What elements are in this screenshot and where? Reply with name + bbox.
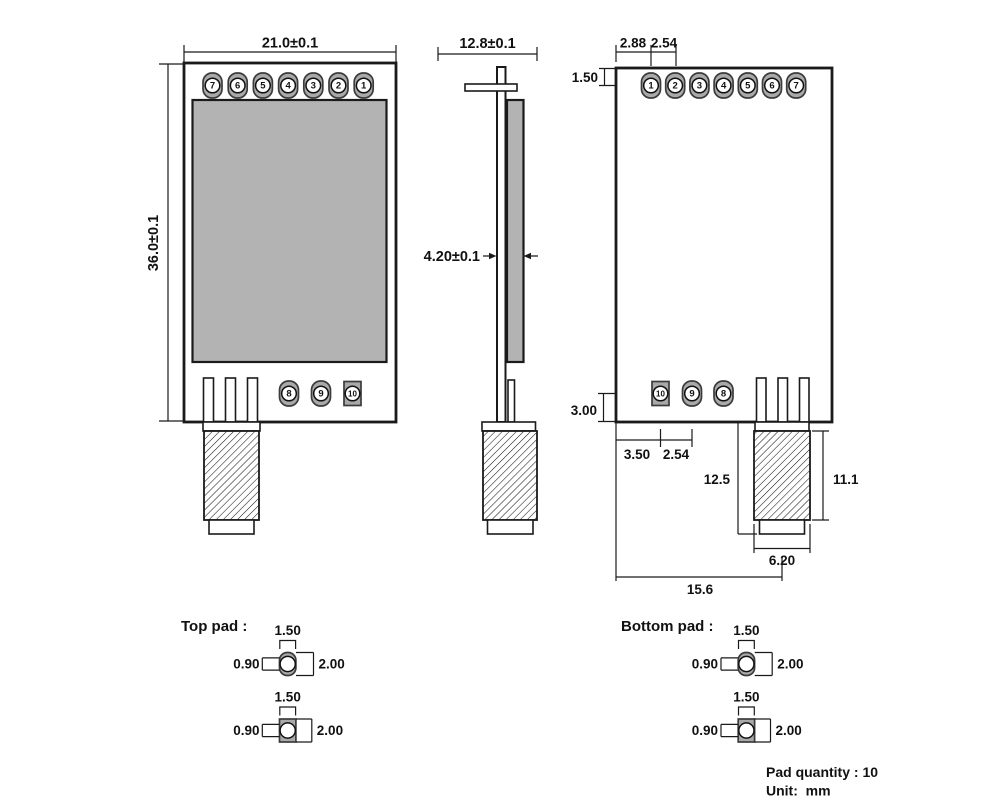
- front-antenna-tip: [209, 520, 254, 534]
- bottom-pad-stadium-height-lines: [755, 653, 773, 676]
- front-view: 21.0±0.1 36.0±0.1 7 6 5 4 3 2 1 8 9 10: [146, 36, 396, 535]
- front-pin-8: 8: [280, 381, 299, 406]
- front-antenna-connector: [203, 422, 260, 534]
- back-antenna-length-dimension: 12.5: [704, 423, 757, 535]
- front-pin-4-num: 4: [285, 81, 291, 92]
- back-pin-row-offset-lines: [599, 69, 615, 86]
- drawing-notes: Pad quantity : 10 Unit: mm: [766, 764, 878, 799]
- front-pin-6-num: 6: [235, 81, 240, 92]
- side-view: 12.8±0.1 4.20±0.1: [424, 36, 538, 534]
- back-bottom-pad-offset-lines: [598, 394, 615, 422]
- back-pin-1: 1: [642, 73, 661, 98]
- back-pin-2: 2: [666, 73, 685, 98]
- back-pin-10: 10: [652, 382, 669, 406]
- bottom-pad-square: 1.50 0.90 2.00: [692, 690, 802, 743]
- back-antenna-tip: [760, 520, 805, 534]
- bottom-pad-square-hole-lines: [721, 724, 738, 736]
- back-pin-5: 5: [738, 73, 757, 98]
- front-antenna-body: [204, 431, 259, 520]
- back-pin-8-num: 8: [721, 389, 726, 400]
- back-bottom-pitch-dimension: 3.50 2.54: [616, 429, 692, 462]
- side-antenna-body: [483, 431, 537, 520]
- back-pin-7: 7: [787, 73, 806, 98]
- top-pad-square-height-text: 2.00: [317, 723, 343, 738]
- front-pin-1: 1: [354, 73, 373, 98]
- back-pin-9-num: 9: [689, 389, 694, 400]
- bottom-pad-stadium-hole-lines: [721, 658, 738, 670]
- back-pin-10-num: 10: [656, 389, 665, 398]
- bottom-pad-square-height-text: 2.00: [776, 723, 802, 738]
- side-shield-can: [507, 100, 524, 362]
- top-pad-square-width-text: 1.50: [275, 690, 301, 705]
- front-pin-3-num: 3: [311, 81, 316, 92]
- front-width-dim-text: 21.0±0.1: [262, 36, 318, 52]
- back-pin-3-num: 3: [697, 81, 702, 92]
- front-pin-5-num: 5: [260, 81, 266, 92]
- back-edge-to-pad10-text: 3.50: [624, 447, 650, 462]
- back-pin-1-num: 1: [648, 81, 654, 92]
- top-pad-square-hole-text: 0.90: [233, 723, 259, 738]
- top-pad-square-hole: [280, 723, 295, 738]
- top-pad-stadium-hole-lines: [262, 658, 279, 670]
- top-pad-stadium: 1.50 0.90 2.00: [233, 623, 345, 676]
- front-height-dim-text: 36.0±0.1: [146, 215, 162, 271]
- top-pad-label: Top pad :: [181, 618, 247, 635]
- back-pin-2-num: 2: [673, 81, 678, 92]
- side-antenna-connector: [482, 422, 537, 534]
- side-width-dimension: 12.8±0.1: [438, 36, 537, 61]
- front-shield-can: [193, 100, 387, 362]
- bottom-pad-detail: Bottom pad : 1.50 0.90 2.00 1.50 0.90 2.…: [621, 618, 803, 742]
- back-view: 2.88 2.54 1.50 1 2 3 4 5 6 7 10 9 8: [571, 36, 859, 598]
- back-header-slots: [757, 378, 810, 422]
- top-pad-square-width-lines: [280, 707, 296, 716]
- back-bottom-pad-offset-dimension: 3.00: [571, 394, 615, 422]
- front-pin-5: 5: [253, 73, 272, 98]
- back-pin-7-num: 7: [794, 81, 799, 92]
- side-pin-bar: [465, 84, 517, 91]
- bottom-pad-stadium-height-text: 2.00: [777, 657, 803, 672]
- unit-note: Unit: mm: [766, 783, 831, 799]
- front-header-slots: [204, 378, 258, 422]
- bottom-pad-square-hole-text: 0.90: [692, 723, 718, 738]
- back-top-dimensions: 2.88 2.54: [616, 36, 678, 67]
- back-pin-4: 4: [714, 73, 733, 98]
- front-pin-7-num: 7: [210, 81, 215, 92]
- bottom-pad-stadium-hole: [739, 656, 754, 671]
- back-pin-6: 6: [763, 73, 782, 98]
- back-pin-4-num: 4: [721, 81, 727, 92]
- top-pad-square-hole-lines: [262, 724, 279, 736]
- side-pcb: [497, 67, 506, 422]
- front-pin-1-num: 1: [361, 81, 367, 92]
- back-bottom-pitch-lines: [616, 429, 692, 447]
- back-antenna-body-length-lines: [812, 431, 829, 520]
- front-pin-8-num: 8: [286, 389, 291, 400]
- back-edge-to-pin1-text: 2.88: [620, 36, 647, 51]
- side-thickness-arrow-right: [489, 253, 497, 259]
- front-pin-2: 2: [329, 73, 348, 98]
- back-antenna-length-text: 12.5: [704, 472, 731, 487]
- bottom-pad-square-height-lines: [755, 719, 771, 742]
- front-pin-3: 3: [304, 73, 323, 98]
- bottom-pad-square-width-text: 1.50: [733, 690, 759, 705]
- bottom-pad-stadium-width-lines: [739, 641, 755, 650]
- side-antenna-tip: [488, 520, 534, 534]
- back-antenna-body: [754, 431, 810, 520]
- back-pin-3: 3: [690, 73, 709, 98]
- top-pad-stadium-height-lines: [296, 653, 314, 676]
- side-thickness-arrow-left: [524, 253, 532, 259]
- side-header-slot: [508, 380, 515, 422]
- front-pin-10: 10: [344, 382, 361, 406]
- front-height-dim-lines: [159, 64, 184, 421]
- top-pad-square-height-lines: [296, 719, 312, 742]
- back-antenna-body-length-text: 11.1: [833, 472, 859, 487]
- module-dimension-drawing: 21.0±0.1 36.0±0.1 7 6 5 4 3 2 1 8 9 10: [0, 0, 1000, 806]
- front-height-dimension: 36.0±0.1: [146, 64, 184, 421]
- top-pad-square: 1.50 0.90 2.00: [233, 690, 343, 743]
- front-pin-9-num: 9: [318, 389, 323, 400]
- side-thickness-dim-text: 4.20±0.1: [424, 249, 480, 265]
- top-pad-detail: Top pad : 1.50 0.90 2.00 1.50 0.90 2.00: [181, 618, 345, 742]
- back-pin-5-num: 5: [745, 81, 751, 92]
- front-pin-2-num: 2: [336, 81, 341, 92]
- top-pad-stadium-hole: [280, 656, 295, 671]
- side-width-dim-text: 12.8±0.1: [459, 36, 515, 52]
- top-pad-stadium-width-text: 1.50: [275, 623, 301, 638]
- top-pad-stadium-width-lines: [280, 641, 296, 650]
- pad-quantity-note: Pad quantity : 10: [766, 764, 878, 780]
- front-width-dimension: 21.0±0.1: [184, 36, 396, 63]
- front-antenna-collar: [203, 422, 260, 431]
- front-pin-10-num: 10: [348, 389, 357, 398]
- bottom-pad-stadium-width-text: 1.50: [733, 623, 759, 638]
- front-pin-6: 6: [228, 73, 247, 98]
- front-pin-9: 9: [312, 381, 331, 406]
- bottom-pad-square-width-lines: [739, 707, 755, 716]
- back-pin-row-offset-dimension: 1.50: [572, 69, 615, 86]
- back-pin-9: 9: [683, 381, 702, 406]
- top-pad-stadium-height-text: 2.00: [319, 657, 345, 672]
- back-pin-8: 8: [714, 381, 733, 406]
- back-antenna-offset-text: 15.6: [687, 582, 714, 597]
- front-pin-7: 7: [203, 73, 222, 98]
- bottom-pad-label: Bottom pad :: [621, 618, 713, 635]
- front-pin-4: 4: [279, 73, 298, 98]
- back-bottom-pad-offset-text: 3.00: [571, 403, 597, 418]
- back-antenna-collar: [755, 422, 809, 431]
- back-antenna-body-length-dimension: 11.1: [812, 431, 859, 520]
- bottom-pad-square-hole: [739, 723, 754, 738]
- back-pin-pitch-text: 2.54: [651, 36, 678, 51]
- top-pad-stadium-hole-text: 0.90: [233, 657, 259, 672]
- bottom-pad-stadium-hole-text: 0.90: [692, 657, 718, 672]
- back-bottom-pad-pitch-text: 2.54: [663, 447, 690, 462]
- back-module-outline: [616, 68, 832, 422]
- side-antenna-collar: [482, 422, 536, 431]
- back-pin-6-num: 6: [769, 81, 774, 92]
- back-antenna-connector: [754, 422, 810, 534]
- back-pin-row-offset-text: 1.50: [572, 70, 598, 85]
- mechanical-drawing-page: 21.0±0.1 36.0±0.1 7 6 5 4 3 2 1 8 9 10: [0, 0, 1000, 806]
